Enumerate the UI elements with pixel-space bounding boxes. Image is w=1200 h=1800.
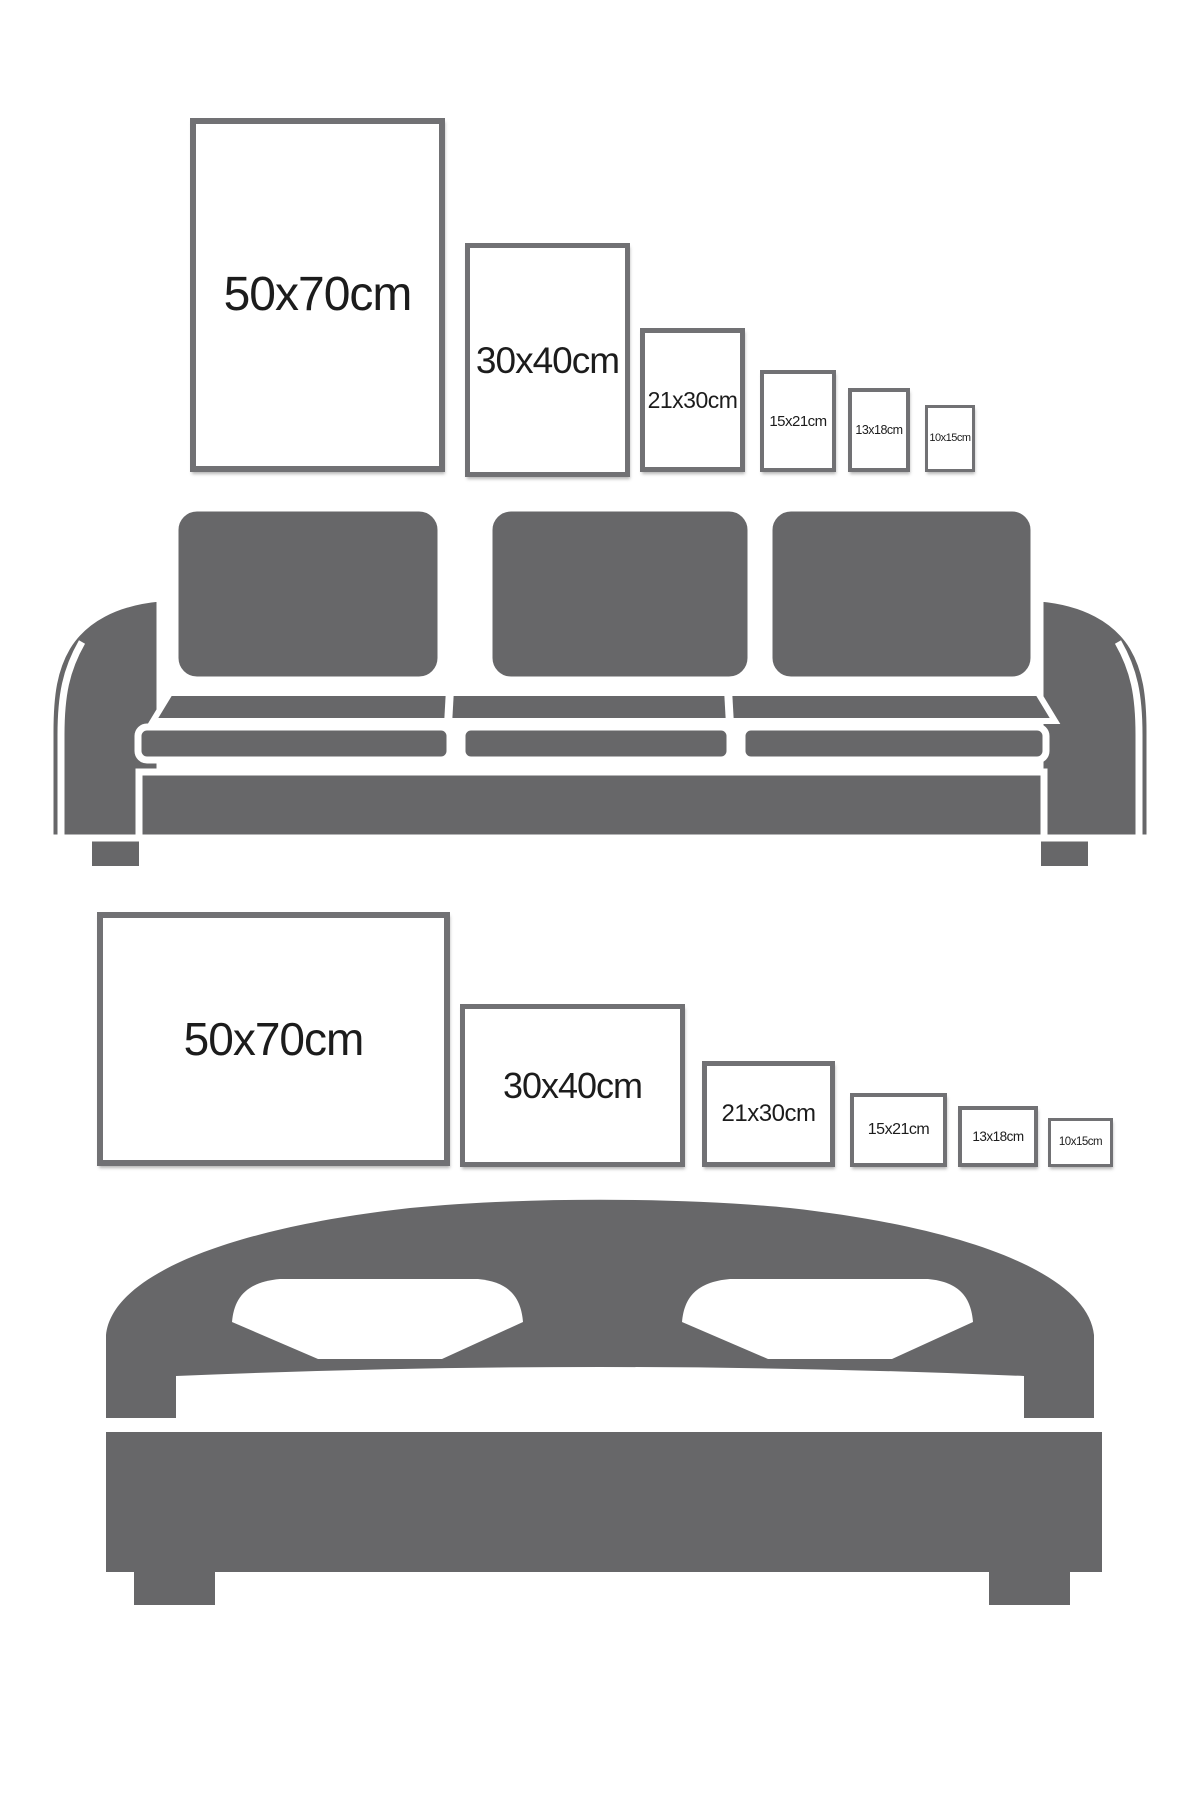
frame-size-label: 13x18cm: [855, 424, 902, 437]
frame-size-label: 10x15cm: [929, 433, 970, 444]
bed-leg-right: [989, 1572, 1070, 1605]
frame-size-label: 50x70cm: [224, 271, 412, 319]
frame-10x15-landscape: 10x15cm: [1048, 1118, 1113, 1167]
frame-13x18-portrait: 13x18cm: [848, 388, 910, 472]
size-guide-poster: 50x70cm 30x40cm 21x30cm 15x21cm 13x18cm …: [0, 0, 1200, 1800]
sofa-seat-cushion: [138, 727, 450, 760]
bed-leg-left: [134, 1572, 215, 1605]
frame-10x15-portrait: 10x15cm: [925, 405, 975, 472]
sofa-back-cushion: [769, 508, 1034, 680]
sofa-back-cushion: [489, 508, 751, 680]
frame-size-label: 21x30cm: [648, 389, 738, 412]
sofa-deck-divider: [728, 689, 730, 725]
frame-30x40-portrait: 30x40cm: [465, 243, 630, 477]
frame-13x18-landscape: 13x18cm: [958, 1106, 1038, 1167]
frame-15x21-portrait: 15x21cm: [760, 370, 836, 472]
frame-size-label: 13x18cm: [972, 1130, 1023, 1144]
frame-size-label: 30x40cm: [476, 342, 619, 379]
bed-illustration: [80, 1180, 1140, 1620]
frame-30x40-landscape: 30x40cm: [460, 1004, 685, 1167]
sofa-deck-divider: [448, 689, 450, 725]
frame-size-label: 50x70cm: [184, 1016, 364, 1062]
bed-base: [106, 1432, 1102, 1572]
frame-size-label: 10x15cm: [1059, 1137, 1102, 1149]
frame-size-label: 15x21cm: [868, 1122, 929, 1138]
frame-50x70-portrait: 50x70cm: [190, 118, 445, 472]
frame-size-label: 21x30cm: [722, 1102, 816, 1126]
frame-50x70-landscape: 50x70cm: [97, 912, 450, 1166]
sofa-illustration: [30, 480, 1170, 880]
frame-21x30-portrait: 21x30cm: [640, 328, 745, 472]
frame-15x21-landscape: 15x21cm: [850, 1093, 947, 1167]
sofa-back-cushion: [175, 508, 441, 680]
frame-21x30-landscape: 21x30cm: [702, 1061, 835, 1167]
sofa-base: [139, 772, 1044, 838]
sofa-seat-cushion: [742, 727, 1046, 760]
sofa-seat-cushion: [462, 727, 730, 760]
frame-size-label: 30x40cm: [503, 1068, 642, 1104]
sofa-seat-deck: [153, 693, 1055, 721]
frame-size-label: 15x21cm: [769, 414, 826, 429]
